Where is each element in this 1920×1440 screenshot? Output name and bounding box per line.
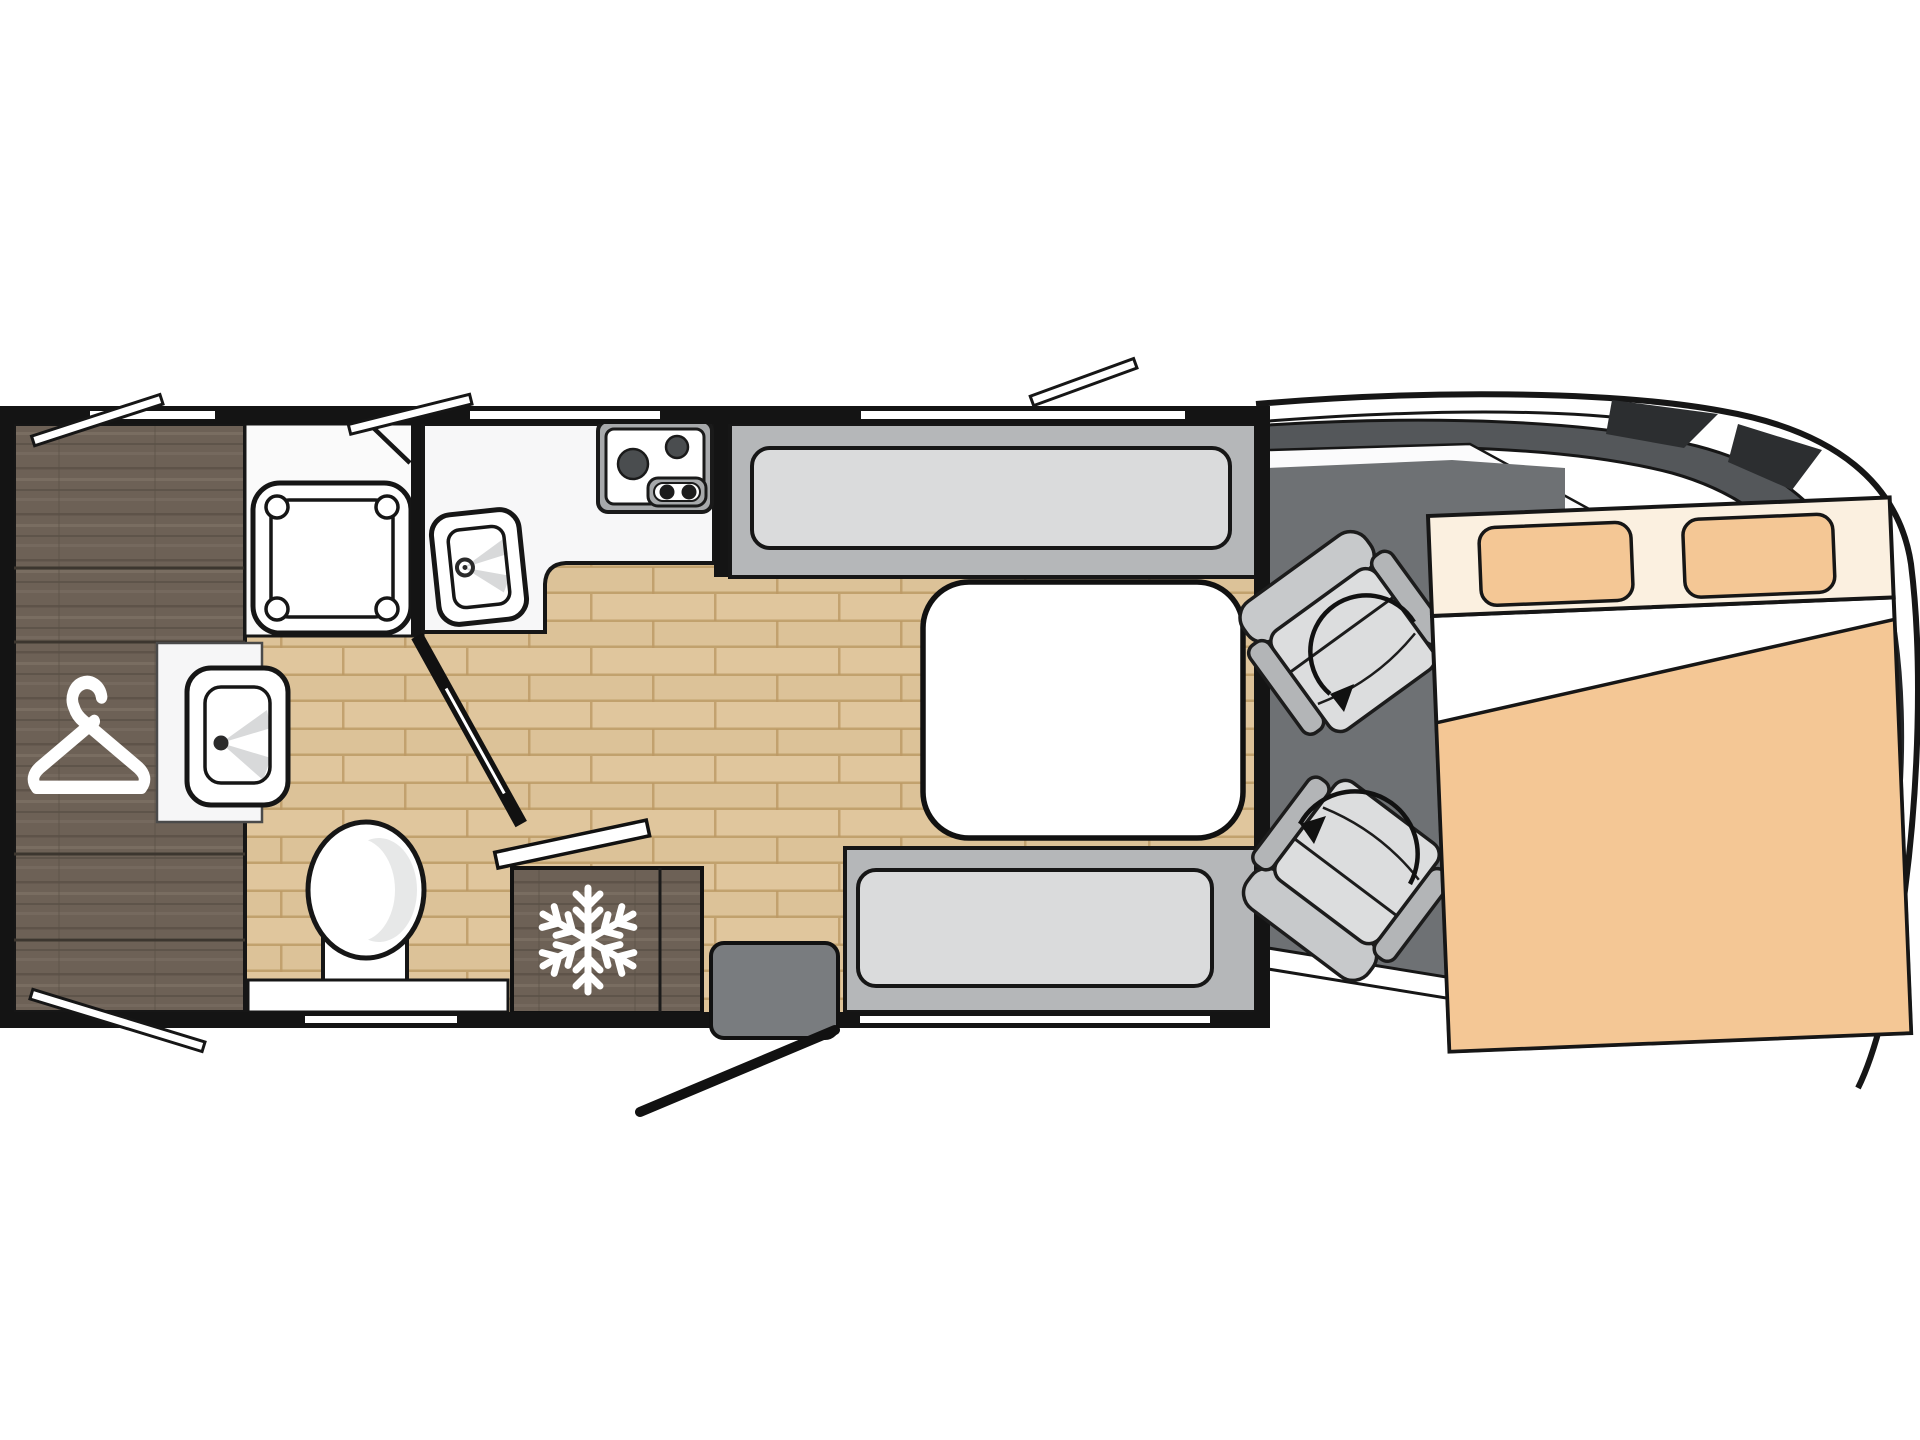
hob — [598, 421, 712, 512]
dinette-table — [923, 582, 1243, 838]
wall-right-cab-step — [1254, 406, 1270, 1028]
basin-faucet — [214, 736, 229, 751]
entry-door-open — [640, 1030, 835, 1112]
burner-large — [618, 449, 648, 479]
bed-pillow-right — [1682, 514, 1835, 598]
motorhome-floorplan — [0, 0, 1920, 1440]
refrigerator — [512, 868, 702, 1013]
floorplan-page — [0, 0, 1920, 1440]
window-bottom-1 — [305, 1016, 457, 1023]
washroom-ledge — [248, 980, 508, 1012]
kitchen-sink — [429, 508, 528, 627]
window-top-2 — [470, 411, 660, 419]
toilet — [308, 822, 424, 990]
double-bed — [1428, 497, 1911, 1051]
window-flap-3 — [1030, 359, 1137, 406]
entry-step — [711, 943, 838, 1038]
bench-rear-cushion — [858, 870, 1212, 986]
burner-small — [666, 436, 688, 458]
washbasin — [187, 668, 288, 805]
kitchen-dinette-divider — [714, 424, 730, 577]
bed-pillow-left — [1479, 522, 1634, 606]
window-bottom-2 — [860, 1016, 1210, 1023]
shower-room — [245, 417, 423, 636]
window-top-3 — [861, 411, 1185, 419]
bench-front-cushion — [752, 448, 1230, 548]
wall-left — [0, 406, 14, 1028]
